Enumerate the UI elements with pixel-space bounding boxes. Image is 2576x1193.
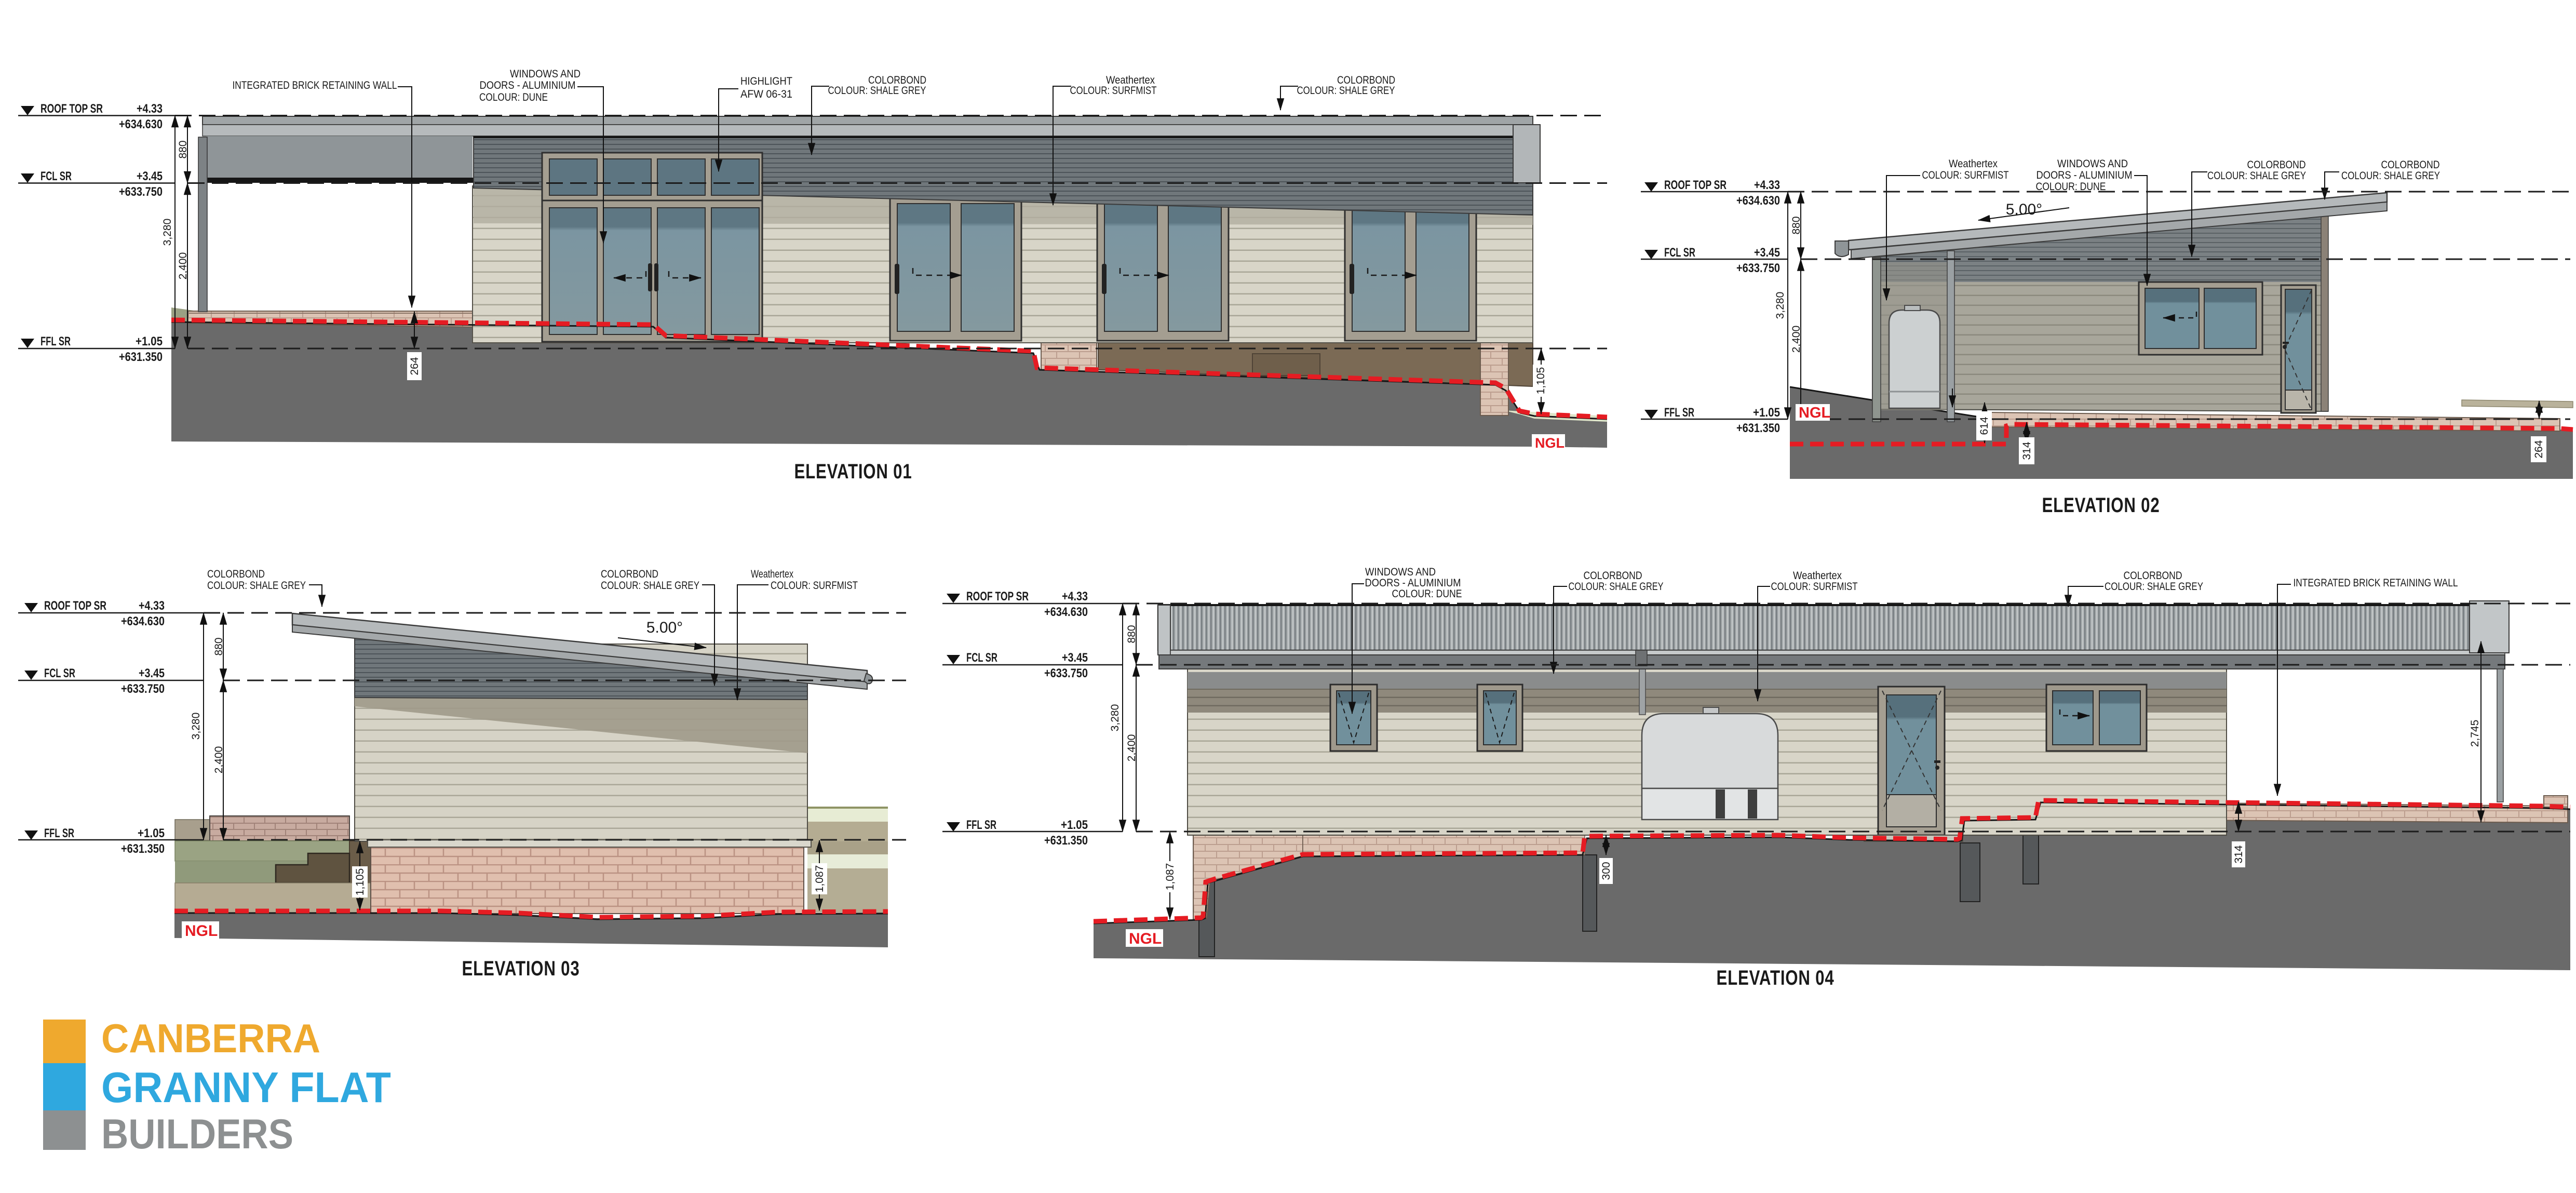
- svg-text:+633.750: +633.750: [1736, 261, 1780, 275]
- svg-text:880: 880: [177, 140, 189, 158]
- svg-text:DOORS - ALUMINIUM: DOORS - ALUMINIUM: [1365, 577, 1461, 589]
- svg-text:FCL SR: FCL SR: [44, 666, 75, 680]
- svg-text:2,400: 2,400: [177, 252, 189, 280]
- svg-text:2,400: 2,400: [213, 746, 225, 774]
- svg-text:880: 880: [1126, 625, 1138, 643]
- svg-text:+3.45: +3.45: [1062, 651, 1088, 665]
- svg-text:COLOUR: SURFMIST: COLOUR: SURFMIST: [1922, 169, 2009, 181]
- svg-text:COLOUR: DUNE: COLOUR: DUNE: [479, 91, 548, 103]
- svg-text:COLORBOND: COLORBOND: [207, 568, 265, 580]
- svg-text:NGL: NGL: [1799, 405, 1830, 421]
- svg-text:2,400: 2,400: [1790, 326, 1802, 353]
- svg-text:3,280: 3,280: [1109, 704, 1121, 732]
- svg-text:FCL SR: FCL SR: [1664, 246, 1695, 260]
- svg-text:ROOF TOP SR: ROOF TOP SR: [966, 589, 1029, 604]
- svg-text:WINDOWS AND: WINDOWS AND: [2057, 158, 2128, 170]
- svg-text:ROOF TOP SR: ROOF TOP SR: [41, 102, 103, 116]
- svg-text:FFL SR: FFL SR: [1664, 406, 1694, 420]
- svg-text:FCL SR: FCL SR: [41, 169, 72, 183]
- svg-text:+631.350: +631.350: [119, 350, 163, 364]
- svg-text:COLOUR: DUNE: COLOUR: DUNE: [2036, 181, 2106, 193]
- svg-text:+631.350: +631.350: [1736, 421, 1780, 435]
- svg-text:WINDOWS AND: WINDOWS AND: [510, 68, 581, 80]
- svg-text:+4.33: +4.33: [139, 599, 165, 613]
- svg-text:INTEGRATED BRICK RETAINING WAL: INTEGRATED BRICK RETAINING WALL: [233, 79, 397, 91]
- svg-text:2,400: 2,400: [1126, 734, 1138, 762]
- svg-text:3,280: 3,280: [1774, 292, 1786, 319]
- svg-text:COLOUR: SURFMIST: COLOUR: SURFMIST: [771, 580, 858, 592]
- svg-text:ELEVATION 03: ELEVATION 03: [462, 957, 580, 980]
- svg-text:2,745: 2,745: [2469, 720, 2481, 747]
- svg-text:COLOUR: SHALE GREY: COLOUR: SHALE GREY: [2341, 170, 2440, 182]
- svg-text:FFL SR: FFL SR: [966, 818, 996, 832]
- svg-text:+634.630: +634.630: [1736, 194, 1780, 208]
- svg-text:314: 314: [2021, 441, 2033, 460]
- svg-text:3,280: 3,280: [190, 713, 202, 740]
- svg-text:+631.350: +631.350: [121, 842, 165, 856]
- svg-text:+633.750: +633.750: [1044, 666, 1088, 680]
- svg-text:1,087: 1,087: [1164, 863, 1176, 891]
- svg-text:880: 880: [1790, 216, 1802, 234]
- svg-text:COLOUR: SURFMIST: COLOUR: SURFMIST: [1771, 581, 1858, 593]
- svg-text:COLOUR: SHALE GREY: COLOUR: SHALE GREY: [2207, 170, 2306, 182]
- svg-text:AFW 06-31: AFW 06-31: [740, 88, 792, 100]
- svg-text:HIGHLIGHT: HIGHLIGHT: [740, 75, 792, 87]
- svg-text:COLOUR: SHALE GREY: COLOUR: SHALE GREY: [1569, 581, 1664, 593]
- svg-text:+634.630: +634.630: [119, 117, 163, 131]
- svg-text:COLORBOND: COLORBOND: [1584, 570, 1642, 582]
- svg-text:+633.750: +633.750: [121, 682, 165, 696]
- svg-text:1,105: 1,105: [354, 868, 366, 896]
- svg-text:1,105: 1,105: [1535, 367, 1547, 395]
- svg-text:+1.05: +1.05: [136, 334, 163, 348]
- svg-text:COLOUR: SHALE GREY: COLOUR: SHALE GREY: [207, 580, 306, 592]
- svg-text:COLOUR: SHALE GREY: COLOUR: SHALE GREY: [2105, 581, 2203, 593]
- svg-text:+3.45: +3.45: [1754, 246, 1780, 260]
- svg-text:+634.630: +634.630: [1044, 605, 1088, 619]
- svg-text:+4.33: +4.33: [1754, 178, 1780, 192]
- svg-text:+1.05: +1.05: [138, 826, 165, 840]
- svg-text:880: 880: [213, 637, 225, 655]
- svg-text:GRANNY FLAT: GRANNY FLAT: [101, 1063, 391, 1111]
- svg-text:Weathertex: Weathertex: [751, 568, 793, 580]
- svg-text:COLOUR: SURFMIST: COLOUR: SURFMIST: [1070, 85, 1157, 97]
- svg-text:314: 314: [2233, 845, 2245, 863]
- svg-text:NGL: NGL: [1535, 435, 1565, 451]
- svg-text:+4.33: +4.33: [1062, 589, 1088, 604]
- svg-text:COLOUR: SHALE GREY: COLOUR: SHALE GREY: [828, 85, 926, 97]
- svg-text:NGL: NGL: [1129, 930, 1162, 947]
- svg-text:NGL: NGL: [185, 922, 218, 940]
- svg-text:COLORBOND: COLORBOND: [2381, 159, 2440, 171]
- svg-text:ELEVATION 04: ELEVATION 04: [1717, 967, 1835, 989]
- svg-text:+631.350: +631.350: [1044, 834, 1088, 848]
- svg-text:FCL SR: FCL SR: [966, 651, 997, 665]
- svg-text:300: 300: [1600, 862, 1612, 880]
- svg-text:1,087: 1,087: [814, 865, 826, 893]
- svg-text:DOORS - ALUMINIUM: DOORS - ALUMINIUM: [480, 79, 576, 91]
- svg-text:5.00°: 5.00°: [646, 619, 683, 636]
- svg-text:COLORBOND: COLORBOND: [2247, 159, 2306, 171]
- svg-text:ELEVATION 02: ELEVATION 02: [2042, 494, 2160, 517]
- svg-text:Weathertex: Weathertex: [1793, 570, 1842, 582]
- svg-text:COLORBOND: COLORBOND: [2124, 570, 2182, 582]
- svg-text:+3.45: +3.45: [137, 169, 163, 183]
- svg-text:WINDOWS AND: WINDOWS AND: [1365, 566, 1436, 578]
- svg-text:INTEGRATED BRICK RETAINING WAL: INTEGRATED BRICK RETAINING WALL: [2294, 577, 2458, 589]
- svg-text:COLORBOND: COLORBOND: [601, 568, 658, 580]
- svg-text:+634.630: +634.630: [121, 614, 165, 628]
- svg-text:+633.750: +633.750: [119, 185, 163, 199]
- svg-text:+1.05: +1.05: [1753, 406, 1780, 420]
- svg-text:+4.33: +4.33: [137, 102, 163, 116]
- svg-text:FFL SR: FFL SR: [44, 826, 74, 840]
- svg-text:ROOF TOP SR: ROOF TOP SR: [1664, 178, 1727, 192]
- svg-text:CANBERRA: CANBERRA: [101, 1015, 320, 1061]
- svg-text:ELEVATION 01: ELEVATION 01: [794, 460, 912, 483]
- svg-text:3,280: 3,280: [161, 219, 173, 246]
- svg-text:+1.05: +1.05: [1061, 818, 1088, 832]
- svg-text:Weathertex: Weathertex: [1949, 158, 1998, 170]
- svg-text:264: 264: [409, 357, 421, 375]
- svg-text:COLOUR: SHALE GREY: COLOUR: SHALE GREY: [601, 580, 699, 592]
- svg-text:FFL SR: FFL SR: [41, 334, 71, 348]
- svg-text:264: 264: [2533, 440, 2545, 458]
- svg-text:DOORS - ALUMINIUM: DOORS - ALUMINIUM: [2036, 169, 2133, 181]
- svg-text:614: 614: [1978, 417, 1990, 435]
- svg-text:BUILDERS: BUILDERS: [101, 1111, 293, 1158]
- svg-text:COLOUR: SHALE GREY: COLOUR: SHALE GREY: [1297, 85, 1395, 97]
- svg-text:COLOUR: DUNE: COLOUR: DUNE: [1392, 588, 1462, 600]
- svg-text:+3.45: +3.45: [139, 666, 165, 680]
- svg-text:ROOF TOP SR: ROOF TOP SR: [44, 599, 106, 613]
